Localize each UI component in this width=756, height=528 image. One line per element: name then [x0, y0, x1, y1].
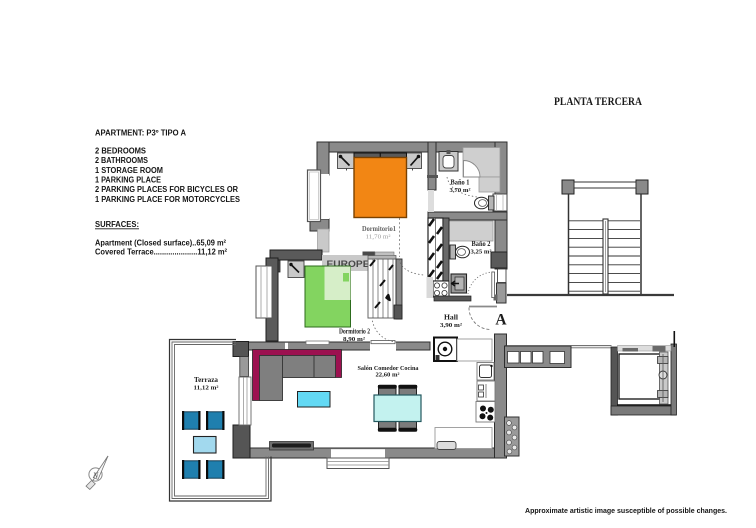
svg-text:11,70 m²: 11,70 m² — [366, 234, 391, 241]
svg-text:3,70 m²: 3,70 m² — [450, 187, 471, 194]
svg-text:Terraza: Terraza — [194, 377, 219, 384]
svg-text:1 STORAGE ROOM: 1 STORAGE ROOM — [95, 166, 163, 175]
svg-text:N: N — [92, 471, 99, 480]
svg-text:APARTMENT: P3º TIPO A: APARTMENT: P3º TIPO A — [95, 129, 186, 138]
svg-text:3,90 m²: 3,90 m² — [440, 322, 462, 329]
svg-text:22,60 m²: 22,60 m² — [376, 372, 400, 379]
svg-text:Apartment (Closed surface)..65: Apartment (Closed surface)..65,09 m² — [95, 238, 226, 247]
svg-text:Dormitorio 2: Dormitorio 2 — [339, 328, 370, 336]
svg-text:1 PARKING PLACE FOR MOTORCYCLE: 1 PARKING PLACE FOR MOTORCYCLES — [95, 195, 241, 204]
svg-text:Approximate artistic image sus: Approximate artistic image susceptible o… — [525, 506, 727, 515]
svg-text:8,90 m²: 8,90 m² — [343, 336, 365, 343]
svg-text:2 BEDROOMS: 2 BEDROOMS — [95, 147, 147, 156]
svg-text:Covered Terrace...............: Covered Terrace.....................11,1… — [95, 248, 227, 257]
svg-text:Baño 1: Baño 1 — [451, 180, 471, 187]
svg-text:Baño 2: Baño 2 — [472, 241, 492, 248]
svg-text:PLANTA TERCERA: PLANTA TERCERA — [554, 96, 643, 108]
svg-text:SURFACES:: SURFACES: — [95, 220, 139, 229]
svg-text:A: A — [495, 312, 507, 329]
svg-text:2 PARKING PLACES FOR BICYCLES: 2 PARKING PLACES FOR BICYCLES OR — [95, 185, 238, 194]
svg-text:1 PARKING PLACE: 1 PARKING PLACE — [95, 176, 162, 185]
svg-text:Dormitorio1: Dormitorio1 — [362, 225, 396, 233]
svg-text:3,25 m²: 3,25 m² — [471, 249, 492, 256]
svg-text:11,12 m²: 11,12 m² — [194, 385, 219, 392]
svg-text:Hall: Hall — [444, 315, 458, 322]
svg-text:2 BATHROOMS: 2 BATHROOMS — [95, 156, 149, 165]
